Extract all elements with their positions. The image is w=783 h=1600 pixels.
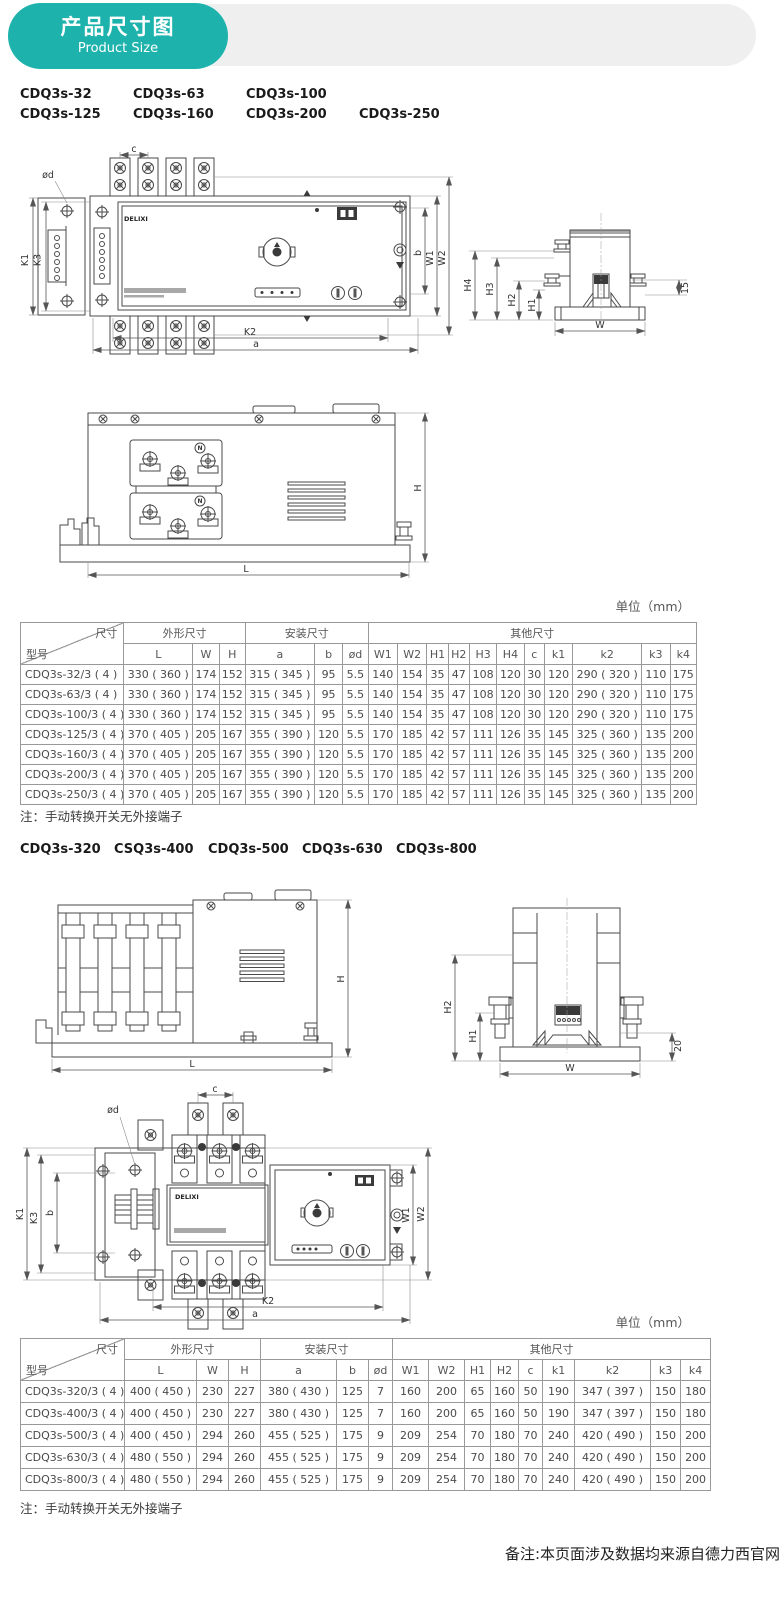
value-cell: 355 ( 390 )	[245, 785, 314, 805]
value-cell: 370 ( 405 )	[124, 745, 193, 765]
elevation-body-large	[36, 890, 332, 1057]
col-header: k1	[543, 1360, 575, 1381]
value-cell: 47	[448, 685, 469, 705]
dimensions-table-small: 尺寸 型号 外形尺寸 安装尺寸 其他尺寸 L W H a b ød W1 W2 …	[20, 622, 697, 805]
corner-header: 尺寸 型号	[21, 1339, 125, 1381]
value-cell: 200	[670, 745, 696, 765]
col-header: k3	[642, 644, 670, 665]
col-header: k3	[651, 1360, 681, 1381]
neutral-label: N	[197, 498, 202, 505]
value-cell: 65	[465, 1403, 491, 1425]
value-cell: 57	[448, 765, 469, 785]
value-cell: 170	[368, 785, 397, 805]
model-label: CSQ3s-400	[114, 842, 208, 857]
model-cell: CDQ3s-125/3 ( 4 )	[21, 725, 124, 745]
value-cell: 150	[651, 1425, 681, 1447]
svg-text:H4: H4	[463, 278, 474, 291]
col-header: W2	[397, 644, 426, 665]
value-cell: 42	[427, 745, 448, 765]
group-header-install: 安装尺寸	[245, 623, 368, 644]
dimension-lines	[33, 155, 449, 350]
table-row: CDQ3s-320/3 ( 4 )400 ( 450 )230227380 ( …	[21, 1381, 711, 1403]
value-cell: 325 ( 360 )	[573, 785, 642, 805]
table-row: CDQ3s-630/3 ( 4 )480 ( 550 )294260455 ( …	[21, 1447, 711, 1469]
value-cell: 355 ( 390 )	[245, 725, 314, 745]
model-label: CDQ3s-100	[246, 87, 359, 102]
elevation-drawing-large: H L	[28, 880, 458, 1075]
value-cell: 70	[519, 1425, 543, 1447]
value-cell: 111	[469, 765, 496, 785]
value-cell: 50	[519, 1381, 543, 1403]
value-cell: 150	[651, 1447, 681, 1469]
value-cell: 170	[368, 725, 397, 745]
model-list-small-row1: CDQ3s-32CDQ3s-63CDQ3s-100	[20, 87, 359, 102]
value-cell: 180	[491, 1447, 519, 1469]
indicator-led	[328, 1172, 332, 1176]
value-cell: 135	[642, 785, 670, 805]
value-cell: 205	[193, 785, 219, 805]
value-cell: 160	[491, 1403, 519, 1425]
dimension-labels: c ød K1 K3 b W1 W2 K2 a	[20, 144, 448, 350]
value-cell: 145	[544, 725, 572, 745]
svg-text:W1: W1	[401, 1207, 412, 1222]
value-cell: 180	[681, 1403, 711, 1425]
value-cell: 42	[427, 785, 448, 805]
value-cell: 140	[368, 665, 397, 685]
value-cell: 120	[314, 785, 342, 805]
value-cell: 135	[642, 765, 670, 785]
svg-text:W: W	[565, 1063, 575, 1074]
value-cell: 7	[369, 1381, 393, 1403]
front-view-body-small	[38, 158, 410, 354]
value-cell: 205	[193, 745, 219, 765]
value-cell: 205	[193, 725, 219, 745]
value-cell: 126	[497, 725, 524, 745]
model-label: CDQ3s-500	[208, 842, 302, 857]
value-cell: 5.5	[343, 685, 368, 705]
value-cell: 150	[651, 1381, 681, 1403]
model-label: CDQ3s-320	[20, 842, 114, 857]
power-switch	[337, 207, 357, 220]
value-cell: 200	[429, 1381, 465, 1403]
value-cell: 240	[543, 1447, 575, 1469]
col-header: k4	[670, 644, 696, 665]
table-row: CDQ3s-63/3 ( 4 )330 ( 360 )174152315 ( 3…	[21, 685, 697, 705]
value-cell: 160	[491, 1381, 519, 1403]
value-cell: 35	[427, 665, 448, 685]
value-cell: 200	[681, 1469, 711, 1491]
table-row: CDQ3s-200/3 ( 4 )370 ( 405 )205167355 ( …	[21, 765, 697, 785]
col-header: W2	[429, 1360, 465, 1381]
elevation-drawing-small: N N H L	[50, 385, 450, 585]
value-cell: 480 ( 550 )	[125, 1447, 197, 1469]
value-cell: 110	[642, 705, 670, 725]
value-cell: 200	[681, 1447, 711, 1469]
svg-text:b: b	[45, 1210, 56, 1216]
value-cell: 175	[670, 685, 696, 705]
side-view-drawing-small: H4 H3 H2 H1 15 W	[455, 188, 765, 338]
value-cell: 254	[429, 1447, 465, 1469]
model-cell: CDQ3s-800/3 ( 4 )	[21, 1469, 125, 1491]
svg-text:W1: W1	[425, 250, 436, 265]
value-cell: 174	[193, 705, 219, 725]
indicator-led	[315, 208, 319, 212]
value-cell: 70	[465, 1469, 491, 1491]
value-cell: 175	[337, 1425, 369, 1447]
value-cell: 420 ( 490 )	[575, 1447, 651, 1469]
svg-text:W: W	[595, 320, 605, 331]
value-cell: 315 ( 345 )	[245, 685, 314, 705]
value-cell: 209	[393, 1425, 429, 1447]
value-cell: 154	[397, 685, 426, 705]
value-cell: 57	[448, 785, 469, 805]
svg-text:K3: K3	[33, 254, 44, 266]
value-cell: 65	[465, 1381, 491, 1403]
model-label: CDQ3s-63	[133, 87, 246, 102]
value-cell: 230	[197, 1381, 229, 1403]
svg-text:ød: ød	[42, 170, 54, 181]
model-list-small-row2: CDQ3s-125CDQ3s-160CDQ3s-200CDQ3s-250	[20, 107, 472, 122]
value-cell: 95	[314, 665, 342, 685]
value-cell: 185	[397, 725, 426, 745]
value-cell: 110	[642, 665, 670, 685]
fuse-icon	[349, 287, 362, 300]
corner-model-label: 型号	[26, 1362, 48, 1378]
footnote: 注：手动转换开关无外接端子	[20, 806, 183, 825]
col-header: H	[219, 644, 245, 665]
extension-lines	[23, 1092, 432, 1324]
source-note: 备注:本页面涉及数据均来源自德力西官网	[380, 1543, 780, 1564]
value-cell: 347 ( 397 )	[575, 1381, 651, 1403]
value-cell: 315 ( 345 )	[245, 705, 314, 725]
table-row: CDQ3s-160/3 ( 4 )370 ( 405 )205167355 ( …	[21, 745, 697, 765]
value-cell: 205	[193, 765, 219, 785]
value-cell: 140	[368, 705, 397, 725]
svg-text:15: 15	[680, 282, 691, 294]
value-cell: 145	[544, 745, 572, 765]
svg-text:K1: K1	[20, 254, 31, 266]
extension-lines	[469, 251, 687, 336]
value-cell: 209	[393, 1447, 429, 1469]
value-cell: 5.5	[343, 765, 368, 785]
model-label: CDQ3s-160	[133, 107, 246, 122]
value-cell: 70	[465, 1447, 491, 1469]
group-header-install: 安装尺寸	[261, 1339, 393, 1360]
svg-text:a: a	[253, 339, 259, 350]
value-cell: 290 ( 320 )	[573, 685, 642, 705]
side-view-body-small	[544, 213, 646, 328]
col-header: H1	[465, 1360, 491, 1381]
dimensions-table-large: 尺寸 型号 外形尺寸 安装尺寸 其他尺寸 L W H a b ød W1 W2 …	[20, 1338, 711, 1491]
value-cell: 9	[369, 1469, 393, 1491]
value-cell: 135	[642, 725, 670, 745]
table-row: CDQ3s-500/3 ( 4 )400 ( 450 )294260455 ( …	[21, 1425, 711, 1447]
table-row: CDQ3s-400/3 ( 4 )400 ( 450 )230227380 ( …	[21, 1403, 711, 1425]
value-cell: 455 ( 525 )	[261, 1447, 337, 1469]
col-header: ød	[369, 1360, 393, 1381]
value-cell: 260	[229, 1447, 261, 1469]
col-header: k1	[544, 644, 572, 665]
svg-text:ød: ød	[107, 1105, 119, 1116]
unit-label: 单位（mm）	[420, 1312, 690, 1331]
value-cell: 355 ( 390 )	[245, 765, 314, 785]
value-cell: 30	[524, 685, 544, 705]
col-header: H3	[469, 644, 496, 665]
value-cell: 260	[229, 1469, 261, 1491]
value-cell: 170	[368, 765, 397, 785]
end-view-drawing-large: H2 H1 20 W	[425, 893, 685, 1085]
value-cell: 175	[337, 1447, 369, 1469]
value-cell: 120	[314, 745, 342, 765]
front-view-body-large	[95, 1103, 404, 1329]
value-cell: 126	[497, 745, 524, 765]
rotary-knob	[259, 238, 295, 266]
value-cell: 35	[524, 745, 544, 765]
value-cell: 152	[219, 705, 245, 725]
value-cell: 120	[497, 665, 524, 685]
value-cell: 180	[491, 1469, 519, 1491]
value-cell: 420 ( 490 )	[575, 1469, 651, 1491]
value-cell: 325 ( 360 )	[573, 765, 642, 785]
value-cell: 110	[642, 685, 670, 705]
value-cell: 290 ( 320 )	[573, 665, 642, 685]
col-header: k4	[681, 1360, 711, 1381]
col-header: b	[337, 1360, 369, 1381]
svg-text:H2: H2	[443, 1000, 454, 1013]
value-cell: 35	[524, 785, 544, 805]
group-header-other: 其他尺寸	[393, 1339, 711, 1360]
svg-text:c: c	[212, 1084, 217, 1095]
value-cell: 5.5	[343, 745, 368, 765]
value-cell: 70	[465, 1425, 491, 1447]
value-cell: 47	[448, 665, 469, 685]
rotary-knob	[301, 1200, 333, 1226]
end-view-body-large	[489, 898, 643, 1061]
value-cell: 120	[497, 705, 524, 725]
value-cell: 120	[314, 725, 342, 745]
value-cell: 290 ( 320 )	[573, 705, 642, 725]
svg-text:L: L	[243, 564, 249, 575]
model-cell: CDQ3s-250/3 ( 4 )	[21, 785, 124, 805]
col-header: W	[197, 1360, 229, 1381]
value-cell: 120	[544, 705, 572, 725]
svg-text:c: c	[131, 144, 136, 155]
value-cell: 150	[651, 1403, 681, 1425]
col-header: a	[245, 644, 314, 665]
table-row: CDQ3s-250/3 ( 4 )370 ( 405 )205167355 ( …	[21, 785, 697, 805]
value-cell: 57	[448, 725, 469, 745]
dimension-labels: H L	[243, 484, 424, 575]
value-cell: 35	[524, 725, 544, 745]
value-cell: 30	[524, 705, 544, 725]
value-cell: 135	[642, 745, 670, 765]
unit-label: 单位（mm）	[420, 596, 690, 615]
front-view-drawing-small: DELIXI c ød K1 K3 b	[20, 140, 473, 363]
group-header-other: 其他尺寸	[368, 623, 696, 644]
value-cell: 167	[219, 785, 245, 805]
svg-text:20: 20	[673, 1040, 684, 1052]
value-cell: 380 ( 430 )	[261, 1381, 337, 1403]
value-cell: 400 ( 450 )	[125, 1403, 197, 1425]
value-cell: 200	[670, 725, 696, 745]
value-cell: 175	[337, 1469, 369, 1491]
value-cell: 154	[397, 665, 426, 685]
corner-size-label: 尺寸	[96, 1341, 118, 1357]
page-subtitle: Product Size	[78, 41, 158, 56]
fuse-icon	[341, 1245, 354, 1258]
fuse-icon	[332, 287, 345, 300]
value-cell: 5.5	[343, 725, 368, 745]
value-cell: 95	[314, 685, 342, 705]
extension-lines	[29, 152, 453, 354]
value-cell: 152	[219, 685, 245, 705]
col-header: k2	[575, 1360, 651, 1381]
col-header: c	[519, 1360, 543, 1381]
model-cell: CDQ3s-500/3 ( 4 )	[21, 1425, 125, 1447]
value-cell: 230	[197, 1403, 229, 1425]
value-cell: 254	[429, 1469, 465, 1491]
power-switch	[355, 1175, 374, 1186]
value-cell: 95	[314, 705, 342, 725]
brand-logo: DELIXI	[175, 1193, 199, 1201]
model-cell: CDQ3s-63/3 ( 4 )	[21, 685, 124, 705]
value-cell: 294	[197, 1447, 229, 1469]
value-cell: 167	[219, 765, 245, 785]
value-cell: 70	[519, 1447, 543, 1469]
svg-text:H3: H3	[485, 282, 496, 295]
value-cell: 240	[543, 1469, 575, 1491]
model-label: CDQ3s-32	[20, 87, 133, 102]
value-cell: 9	[369, 1425, 393, 1447]
svg-text:K3: K3	[29, 1212, 40, 1224]
value-cell: 174	[193, 665, 219, 685]
svg-text:H1: H1	[468, 1029, 479, 1042]
col-header: W1	[393, 1360, 429, 1381]
value-cell: 175	[670, 665, 696, 685]
model-cell: CDQ3s-100/3 ( 4 )	[21, 705, 124, 725]
model-cell: CDQ3s-160/3 ( 4 )	[21, 745, 124, 765]
svg-text:K1: K1	[15, 1208, 26, 1220]
col-header: ød	[343, 644, 368, 665]
value-cell: 420 ( 490 )	[575, 1425, 651, 1447]
value-cell: 254	[429, 1425, 465, 1447]
model-label: CDQ3s-200	[246, 107, 359, 122]
col-header: c	[524, 644, 544, 665]
model-cell: CDQ3s-320/3 ( 4 )	[21, 1381, 125, 1403]
group-header-shape: 外形尺寸	[124, 623, 246, 644]
value-cell: 227	[229, 1381, 261, 1403]
model-cell: CDQ3s-400/3 ( 4 )	[21, 1403, 125, 1425]
value-cell: 480 ( 550 )	[125, 1469, 197, 1491]
page-title: 产品尺寸图	[61, 16, 176, 39]
section-badge: 产品尺寸图 Product Size	[8, 3, 228, 69]
col-header: H4	[497, 644, 524, 665]
value-cell: 108	[469, 665, 496, 685]
value-cell: 30	[524, 665, 544, 685]
model-cell: CDQ3s-630/3 ( 4 )	[21, 1447, 125, 1469]
value-cell: 160	[393, 1381, 429, 1403]
brand-logo: DELIXI	[124, 215, 148, 223]
value-cell: 35	[427, 705, 448, 725]
svg-text:H2: H2	[507, 293, 518, 306]
col-header: H2	[448, 644, 469, 665]
value-cell: 185	[397, 785, 426, 805]
value-cell: 167	[219, 745, 245, 765]
svg-text:W2: W2	[416, 1206, 427, 1221]
table-row: CDQ3s-800/3 ( 4 )480 ( 550 )294260455 ( …	[21, 1469, 711, 1491]
footnote: 注：手动转换开关无外接端子	[20, 1498, 183, 1517]
col-header: L	[125, 1360, 197, 1381]
value-cell: 47	[448, 705, 469, 725]
model-label: CDQ3s-125	[20, 107, 133, 122]
value-cell: 294	[197, 1425, 229, 1447]
col-header: W1	[368, 644, 397, 665]
value-cell: 380 ( 430 )	[261, 1403, 337, 1425]
table-row: CDQ3s-125/3 ( 4 )370 ( 405 )205167355 ( …	[21, 725, 697, 745]
group-header-shape: 外形尺寸	[125, 1339, 261, 1360]
value-cell: 111	[469, 745, 496, 765]
value-cell: 152	[219, 665, 245, 685]
corner-model-label: 型号	[26, 646, 48, 662]
value-cell: 57	[448, 745, 469, 765]
value-cell: 294	[197, 1469, 229, 1491]
value-cell: 70	[519, 1469, 543, 1491]
value-cell: 35	[524, 765, 544, 785]
value-cell: 145	[544, 785, 572, 805]
value-cell: 42	[427, 765, 448, 785]
value-cell: 5.5	[343, 785, 368, 805]
value-cell: 180	[491, 1425, 519, 1447]
value-cell: 120	[497, 685, 524, 705]
col-header: b	[314, 644, 342, 665]
value-cell: 400 ( 450 )	[125, 1381, 197, 1403]
value-cell: 190	[543, 1403, 575, 1425]
value-cell: 180	[681, 1381, 711, 1403]
value-cell: 330 ( 360 )	[124, 665, 193, 685]
value-cell: 185	[397, 745, 426, 765]
extension-lines	[88, 413, 429, 578]
table-row: CDQ3s-100/3 ( 4 )330 ( 360 )174152315 ( …	[21, 705, 697, 725]
dimension-lines	[475, 251, 679, 331]
value-cell: 325 ( 360 )	[573, 745, 642, 765]
model-label: CDQ3s-800	[396, 842, 490, 857]
value-cell: 330 ( 360 )	[124, 705, 193, 725]
svg-text:K2: K2	[262, 1296, 274, 1307]
svg-text:L: L	[189, 1059, 195, 1070]
front-view-drawing-large: DELIXI ød c K1 K3 b	[15, 1079, 461, 1335]
col-header: H	[229, 1360, 261, 1381]
value-cell: 260	[229, 1425, 261, 1447]
col-header: W	[193, 644, 219, 665]
value-cell: 126	[497, 785, 524, 805]
neutral-label: N	[197, 445, 202, 452]
value-cell: 120	[544, 665, 572, 685]
table-row: CDQ3s-32/3 ( 4 )330 ( 360 )174152315 ( 3…	[21, 665, 697, 685]
value-cell: 370 ( 405 )	[124, 785, 193, 805]
col-header: H1	[427, 644, 448, 665]
value-cell: 35	[427, 685, 448, 705]
svg-text:W2: W2	[437, 250, 448, 265]
value-cell: 9	[369, 1447, 393, 1469]
svg-text:H: H	[413, 484, 424, 491]
value-cell: 209	[393, 1469, 429, 1491]
value-cell: 120	[544, 685, 572, 705]
value-cell: 330 ( 360 )	[124, 685, 193, 705]
value-cell: 7	[369, 1403, 393, 1425]
model-cell: CDQ3s-200/3 ( 4 )	[21, 765, 124, 785]
value-cell: 355 ( 390 )	[245, 745, 314, 765]
value-cell: 190	[543, 1381, 575, 1403]
